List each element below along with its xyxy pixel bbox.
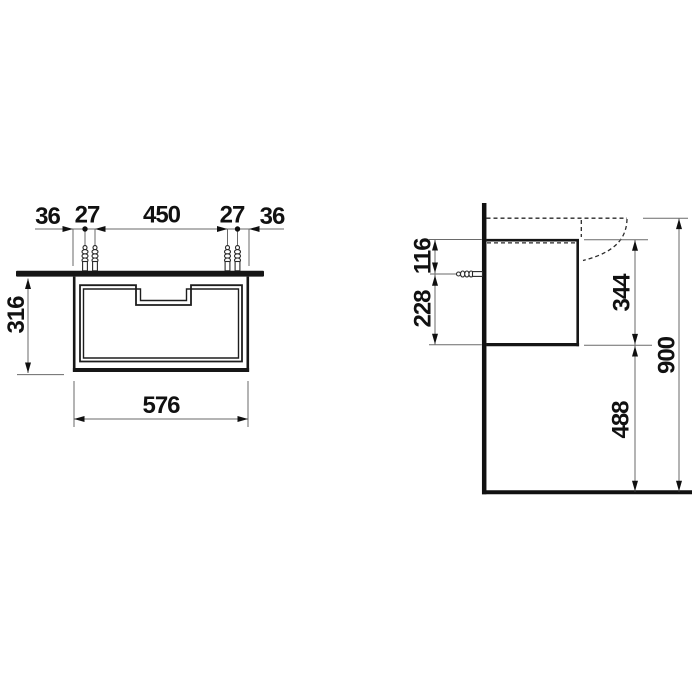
dim-label-27-right: 27 — [220, 202, 245, 229]
wall-anchor-symbol — [92, 246, 98, 271]
drawer-front-outer-line — [80, 285, 242, 361]
arrowhead-right — [63, 226, 74, 232]
arrowhead-down — [676, 481, 682, 492]
drawer-front-inner-line — [84, 289, 239, 358]
dim-label-450: 450 — [143, 202, 181, 229]
arrowhead-down — [432, 334, 438, 345]
front-view: 36 27 450 27 36 — [3, 202, 285, 428]
cabinet-height-clearance-dimensions: 344 488 — [584, 240, 652, 492]
wall-anchor-symbol — [225, 246, 231, 271]
cabinet-side-outline — [486, 239, 579, 346]
drawer-front — [80, 285, 242, 361]
arrowhead-right — [238, 416, 249, 422]
anchor-position-dimensions: 116 228 — [410, 238, 482, 345]
dim-label-900: 900 — [654, 336, 681, 374]
total-height-dimension: 900 — [643, 218, 688, 491]
arrowhead-up — [432, 275, 438, 286]
width-dimension: 576 — [74, 381, 248, 427]
top-dimension-chain: 36 27 450 27 36 — [35, 202, 285, 267]
wall-anchor-side-symbol — [430, 271, 483, 277]
height-dimension: 316 — [3, 279, 64, 375]
countertop-slab — [16, 271, 264, 277]
dimension-drawing: 36 27 450 27 36 — [0, 0, 700, 700]
dim-label-228: 228 — [410, 290, 437, 328]
dim-label-488: 488 — [608, 401, 635, 439]
dim-label-116: 116 — [410, 238, 437, 274]
arrowhead-left — [74, 416, 85, 422]
arrowhead-down — [632, 481, 638, 492]
arrowhead-up — [676, 219, 682, 230]
dim-label-27-left: 27 — [75, 202, 100, 229]
wall-anchor-symbol — [235, 246, 241, 271]
arrowhead-up — [632, 240, 638, 251]
arrowhead-up — [25, 279, 31, 290]
arrowhead-up — [632, 346, 638, 357]
arrowhead-down — [632, 334, 638, 345]
arrowhead-left — [249, 226, 260, 232]
arrowhead-down — [25, 363, 31, 374]
dim-label-36-left: 36 — [35, 203, 60, 230]
wall-anchor-symbol — [82, 246, 88, 271]
dim-label-36-right: 36 — [260, 203, 285, 230]
dim-label-576: 576 — [142, 392, 180, 419]
side-view: 116 228 344 488 900 — [410, 203, 693, 494]
dim-label-316: 316 — [3, 296, 30, 334]
dim-label-344: 344 — [609, 273, 636, 312]
technical-drawing-canvas: 36 27 450 27 36 — [0, 0, 700, 700]
